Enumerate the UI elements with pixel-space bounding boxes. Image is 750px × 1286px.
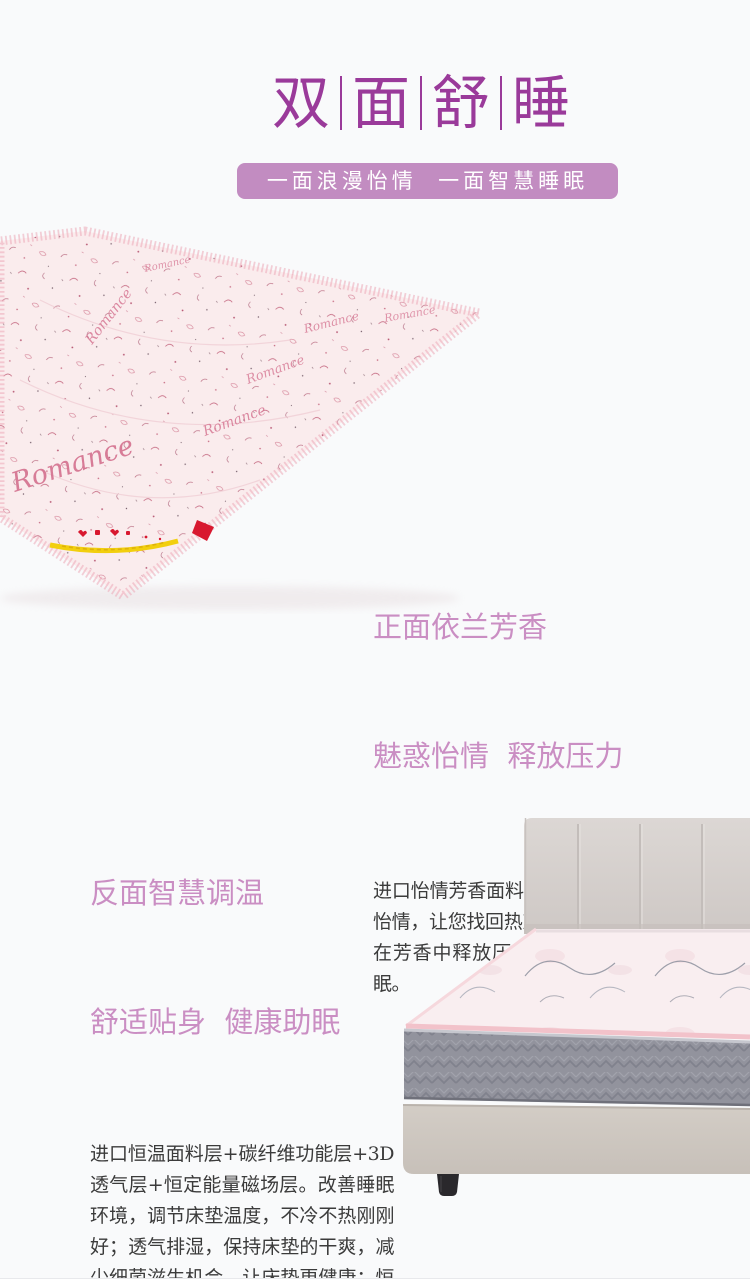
heading-line: 舒适贴身 健康助眠 <box>90 1001 394 1044</box>
title-char: 双 <box>272 74 330 132</box>
bed-base <box>403 1104 750 1174</box>
section-back-heading: 反面智慧调温 舒适贴身 健康助眠 <box>90 786 394 1130</box>
title-separator <box>340 76 342 130</box>
page-title: 双 面 舒 睡 <box>0 74 750 132</box>
title-separator <box>500 76 502 130</box>
heading-line: 正面依兰芳香 <box>373 606 709 649</box>
headboard <box>524 818 750 934</box>
title-separator <box>420 76 422 130</box>
mattress-top-pattern <box>406 929 750 1038</box>
section-back-temperature: 反面智慧调温 舒适贴身 健康助眠 进口恒温面料层+碳纤维功能层+3D透气层+恒定… <box>90 786 394 1286</box>
title-char: 睡 <box>512 74 570 132</box>
bed-image <box>390 810 750 1204</box>
footer-divider <box>0 1278 750 1286</box>
section-back-body: 进口恒温面料层+碳纤维功能层+3D透气层+恒定能量磁场层。改善睡眠环境，调节床垫… <box>90 1139 394 1286</box>
subtitle-banner: 一面浪漫怡情 一面智慧睡眠 <box>237 163 618 199</box>
product-detail-page: 双 面 舒 睡 一面浪漫怡情 一面智慧睡眠 <box>0 0 750 1286</box>
title-char: 舒 <box>432 74 490 132</box>
heading-line: 反面智慧调温 <box>90 872 394 915</box>
title-char: 面 <box>352 74 410 132</box>
heading-line: 魅惑怡情 释放压力 <box>373 735 709 778</box>
